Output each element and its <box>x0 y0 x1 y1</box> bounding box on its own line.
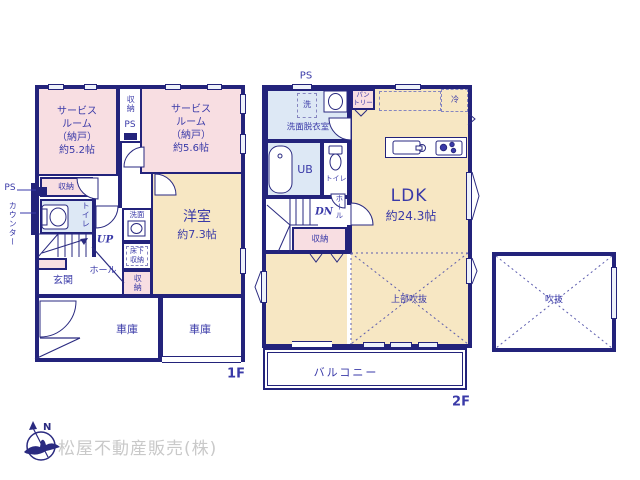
label-hall-1f: ホール <box>89 266 116 278</box>
label-upper-void: 上部吹抜 <box>391 295 427 307</box>
floorplan-canvas: N サービス ルーム （納戸） 約5.2帖 収納 PS サービス ルーム （納戸… <box>0 0 640 480</box>
label-entrance: 玄関 <box>53 275 73 288</box>
stairs-1f <box>38 234 92 257</box>
stairs-2f <box>267 199 318 253</box>
label-service-room-2: サービス ルーム （納戸） 約5.6帖 <box>171 103 211 155</box>
door-arc <box>124 147 144 167</box>
label-hall-2f: ホール <box>334 194 344 220</box>
label-closet-strip: 収納 <box>58 182 74 192</box>
label-pantry: パン トリー <box>353 91 373 108</box>
door-arc <box>96 206 118 228</box>
stairs-arrow-head <box>80 238 88 245</box>
label-mid-ps: PS <box>124 120 135 132</box>
label-bath-ub: UB <box>297 163 313 177</box>
door-arc <box>329 118 351 140</box>
label-floor1: 1F <box>227 367 245 384</box>
compass-icon: N <box>24 421 60 460</box>
label-side-counter: カウンター <box>7 202 17 247</box>
label-void-box: 吹抜 <box>545 295 563 307</box>
label-toilet-1f: トイレ <box>80 202 90 229</box>
toilet-icon-2f <box>329 146 342 170</box>
label-washbasin-1f: 洗面 <box>130 210 145 220</box>
sink-icon-1f <box>128 221 145 236</box>
company-name: 松屋不動産販売(株) <box>58 438 217 460</box>
label-closet-vertical: 収納 <box>132 274 142 292</box>
compass-north-label: N <box>43 422 51 433</box>
label-garage-left: 車庫 <box>116 323 138 337</box>
window-chevrons <box>255 110 479 303</box>
sink-icon-2f <box>324 91 347 112</box>
kitchen-sink-icon <box>393 141 426 154</box>
label-closet-2f: 収納 <box>311 234 328 245</box>
label-ldk-name: LDK <box>391 185 428 207</box>
garage-diagonal <box>35 338 80 359</box>
label-up: UP <box>97 234 113 247</box>
label-mid-closet: 収納 <box>125 95 135 113</box>
label-fridge: 冷 <box>451 95 459 105</box>
label-top-ps: PS <box>300 70 312 83</box>
garage-door-arc <box>40 301 76 337</box>
label-dn: DN <box>315 206 333 219</box>
label-toilet-2f: トイレ <box>326 174 347 183</box>
bathtub-icon <box>269 146 292 193</box>
label-laundry: 洗 <box>303 100 311 110</box>
label-ldk-size: 約24.3帖 <box>386 209 437 225</box>
stove-icon <box>436 141 462 155</box>
door-arc <box>155 174 176 195</box>
label-underfloor-storage: 床下 収納 <box>130 247 144 265</box>
label-garage-right: 車庫 <box>189 323 211 337</box>
label-side-ps: PS <box>4 183 15 195</box>
leader-lines <box>17 190 36 213</box>
label-balcony: バルコニー <box>314 366 379 380</box>
label-floor2: 2F <box>452 395 470 412</box>
label-service-room-1: サービス ルーム （納戸） 約5.2帖 <box>57 105 97 157</box>
label-bedroom-size: 約7.3帖 <box>177 228 217 242</box>
toilet-icon-1f <box>42 205 68 229</box>
door-arc <box>77 178 98 199</box>
door-arc <box>351 203 373 225</box>
label-bedroom-name: 洋室 <box>183 208 211 226</box>
label-washroom: 洗面脱衣室 <box>287 122 330 133</box>
